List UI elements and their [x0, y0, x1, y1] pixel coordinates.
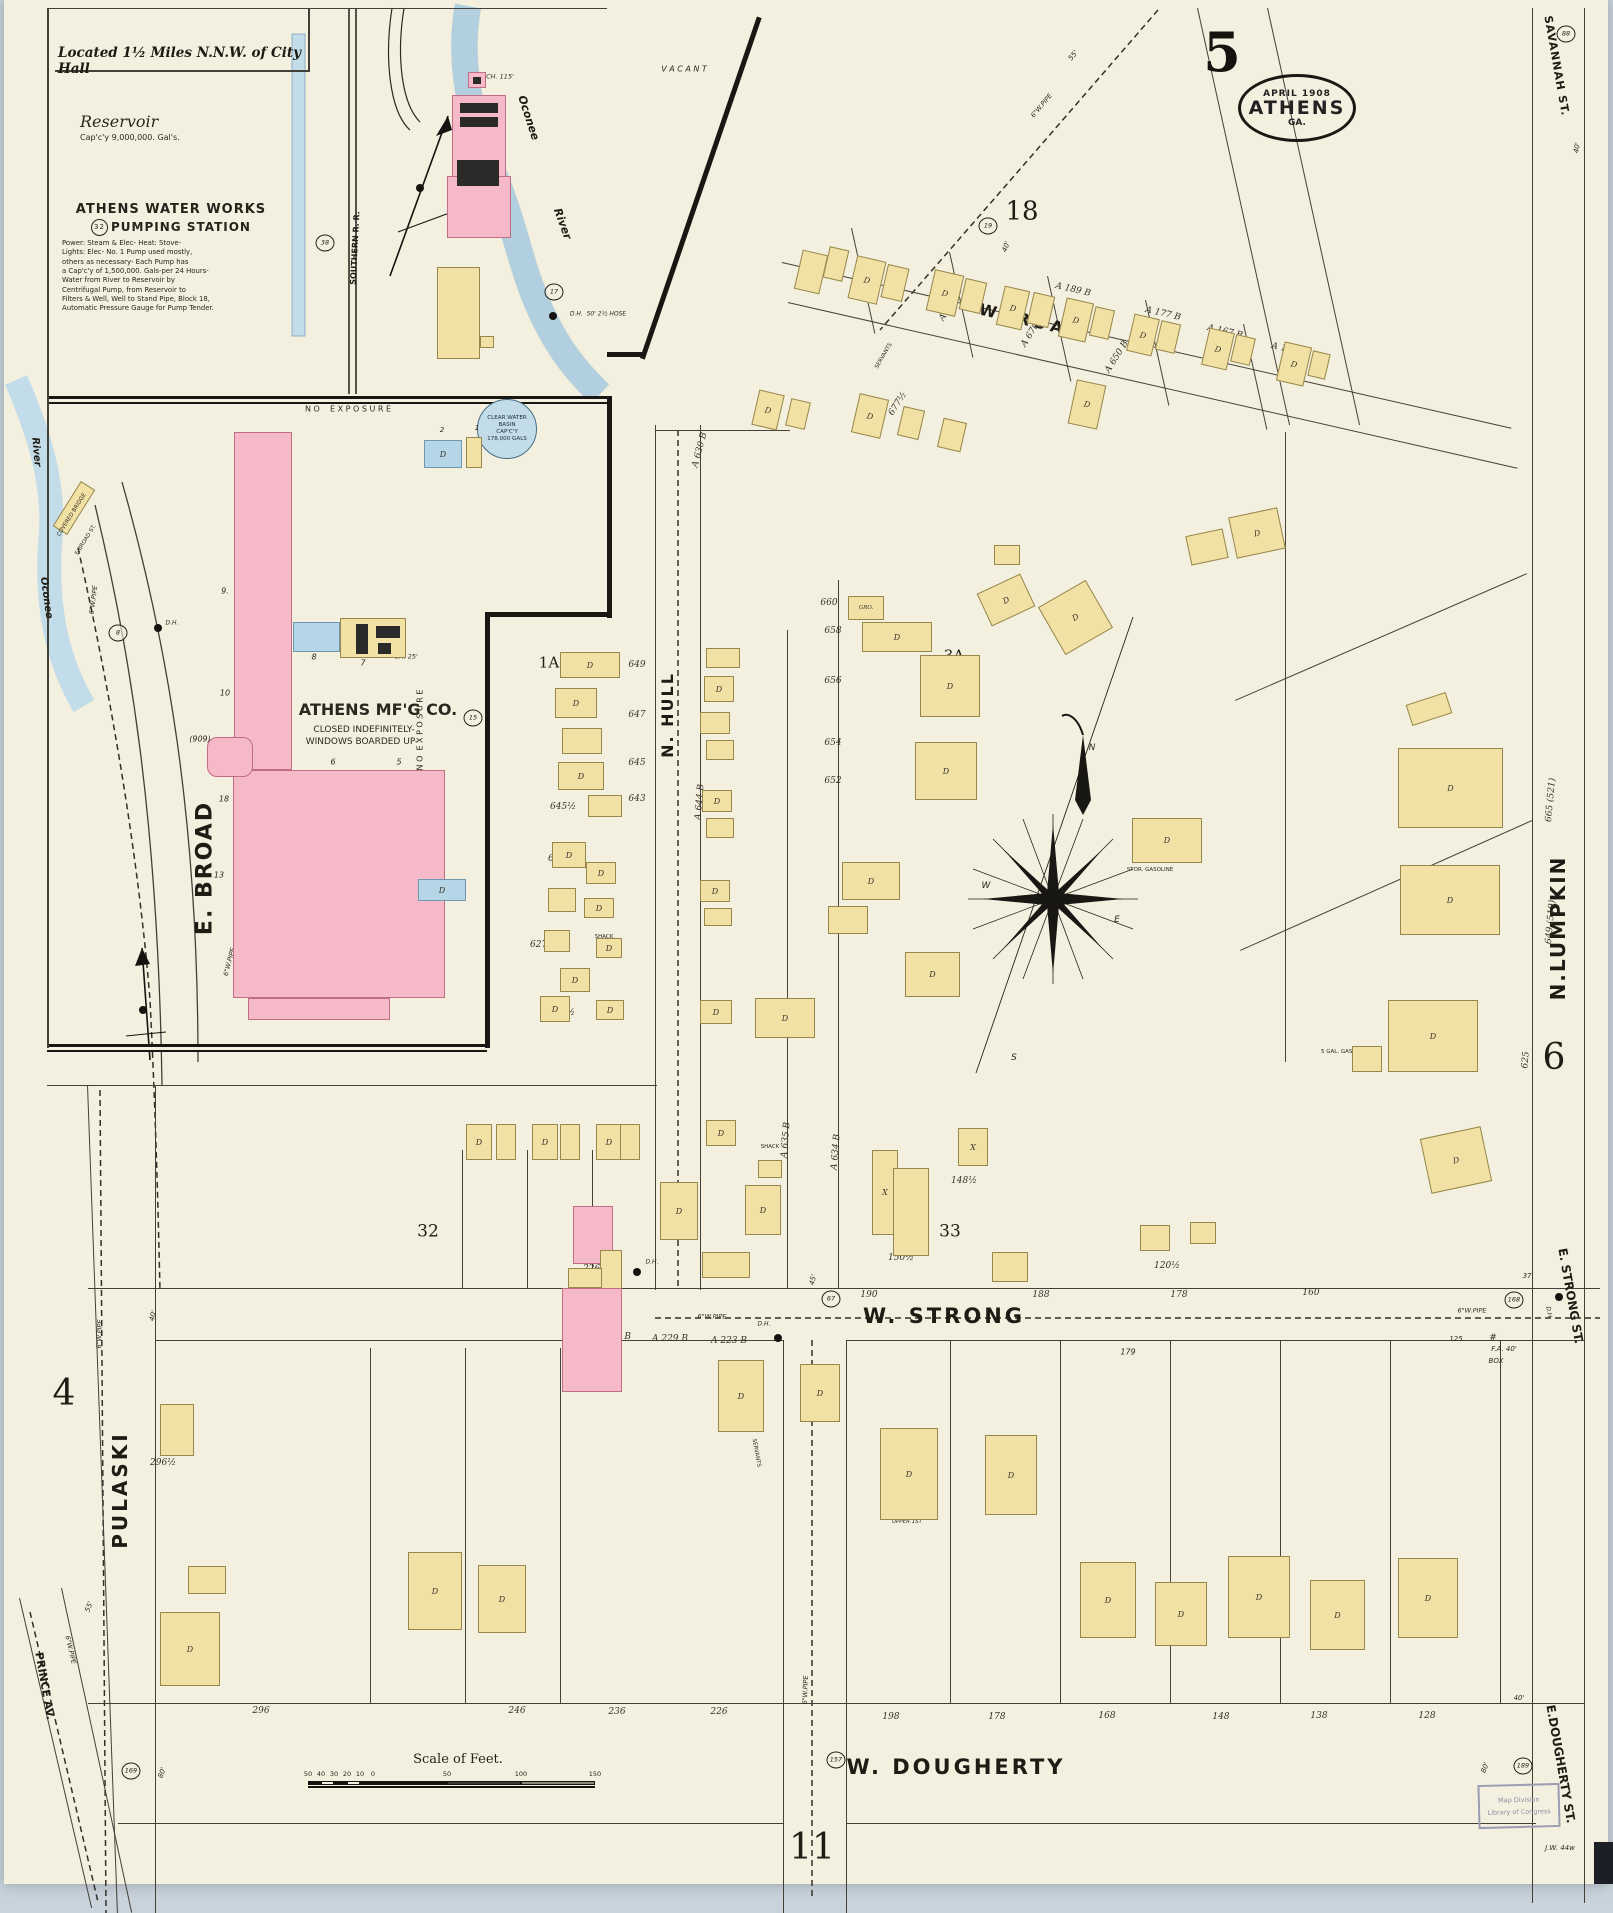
building-footprint — [702, 1252, 750, 1278]
reservoir-title: Reservoir — [80, 112, 180, 131]
house-number: 236 — [608, 1707, 625, 1717]
hydrant-dot — [774, 1334, 782, 1342]
building-footprint — [544, 930, 570, 952]
building-label: D — [1133, 819, 1201, 862]
scale-tick: 100 — [515, 1770, 527, 1778]
building-label: D — [597, 1001, 623, 1019]
building-footprint: D — [704, 676, 734, 702]
map-note: 2 — [440, 427, 444, 435]
sheet-border — [47, 8, 607, 9]
street-label: W. DOUGHERTY — [847, 1756, 1066, 1780]
e-broad-street-line — [95, 505, 162, 1085]
building-label: D — [161, 1613, 219, 1685]
map-note: SHACK — [761, 1144, 780, 1150]
block-number: 6 — [1543, 1038, 1566, 1078]
map-note: 6"W.PIPE — [1458, 1307, 1487, 1314]
map-note: D.H. — [1544, 1306, 1553, 1320]
building-label: D — [1229, 1557, 1289, 1637]
lot-line — [560, 1348, 561, 1704]
map-state: GA. — [1288, 118, 1306, 128]
building-footprint: D — [702, 790, 732, 812]
building-footprint: X — [958, 1128, 988, 1166]
scale-tick: 10 — [356, 1770, 364, 1778]
building-footprint — [473, 77, 481, 84]
building-label: D — [1081, 1563, 1135, 1637]
building-label: D — [916, 743, 976, 799]
building-footprint — [706, 818, 734, 838]
building-footprint — [378, 643, 391, 654]
savannah-street-line — [1584, 8, 1585, 1903]
scale-bar-segment — [360, 1781, 373, 1785]
lot-line — [1060, 1340, 1061, 1704]
building-label: D — [701, 881, 729, 901]
lot-line — [1280, 1340, 1281, 1704]
hydrant-dot — [154, 624, 162, 632]
building-footprint: D — [700, 880, 730, 902]
sheet-border — [47, 8, 49, 1048]
oconee-river-left — [16, 380, 84, 706]
scale-tick: 150 — [589, 1770, 601, 1778]
map-note: S — [1011, 1053, 1017, 1063]
building-footprint — [562, 1288, 622, 1392]
w-strong-street-line — [155, 1340, 783, 1341]
house-number: 660 — [820, 598, 837, 608]
house-number: A 229 B — [652, 1334, 688, 1344]
house-number: 656 — [824, 676, 841, 686]
building-footprint — [620, 1124, 640, 1160]
building-label: D — [479, 1566, 525, 1632]
building-footprint: D — [596, 938, 622, 958]
building-label: D — [705, 677, 733, 701]
block-number: 4 — [53, 1374, 76, 1414]
building-footprint: D — [1155, 1582, 1207, 1646]
house-number: 178 — [1170, 1290, 1187, 1300]
building-footprint: D — [718, 1360, 764, 1432]
rail-spur — [401, 8, 420, 122]
section-border — [607, 396, 612, 618]
building-label: D — [1421, 1127, 1491, 1192]
block-number: 18 — [1005, 197, 1038, 226]
building-footprint: D — [1398, 1558, 1458, 1638]
lot-line — [527, 1150, 528, 1288]
building-label: D — [597, 939, 621, 957]
building-footprint — [568, 1268, 602, 1288]
building-footprint — [207, 737, 253, 777]
house-number: 128 — [1418, 1711, 1435, 1721]
building-label: D — [559, 763, 603, 789]
circled-reference-number: 8 — [109, 625, 128, 642]
building-footprint — [460, 103, 498, 113]
scale-tick: 50 — [443, 1770, 451, 1778]
waterworks-subtitle: 32PUMPING STATION — [62, 219, 280, 236]
north-arrow-waterworks — [390, 116, 452, 276]
building-footprint: D — [560, 652, 620, 678]
building-footprint — [1140, 1225, 1170, 1251]
map-note: W — [982, 881, 991, 891]
circled-reference-number: 157 — [827, 1752, 846, 1769]
street-label: E. BROAD — [194, 801, 219, 935]
building-label: X — [959, 1129, 987, 1165]
map-note: 9. — [221, 588, 229, 597]
map-note: E — [1114, 915, 1120, 925]
lot-line — [787, 630, 788, 1288]
building-footprint: D — [596, 1000, 624, 1020]
waterworks-title: ATHENS WATER WORKS — [62, 202, 280, 217]
street-label: PULASKI — [109, 1431, 131, 1548]
house-number: 148 — [1212, 1712, 1229, 1722]
building-label: D — [719, 1361, 763, 1431]
building-footprint — [560, 1124, 580, 1160]
map-note: 18 — [219, 796, 229, 805]
w-dougherty-street-line — [846, 1823, 1536, 1824]
building-footprint — [600, 1250, 622, 1292]
map-note: 37' — [1523, 1273, 1534, 1281]
house-number: 625 — [1520, 1051, 1532, 1069]
lot-line — [370, 1348, 371, 1704]
stamp-line: Library of Congress — [1487, 1807, 1550, 1817]
building-footprint: D — [1132, 818, 1202, 863]
map-note: 6"W.PIPE — [698, 1313, 727, 1320]
n-hull-street-line — [700, 425, 701, 1290]
building-footprint: D — [555, 688, 597, 718]
pulaski-street-line — [155, 1085, 156, 1913]
building-footprint — [700, 712, 730, 734]
house-number: 160 — [1302, 1288, 1319, 1298]
building-label: D — [756, 999, 814, 1037]
circled-reference-number: 38 — [316, 235, 335, 252]
map-note: D.H. — [166, 621, 179, 628]
building-footprint — [248, 998, 390, 1020]
house-number: 652 — [824, 776, 841, 786]
building-label: D — [585, 899, 613, 917]
building-label: D — [986, 1436, 1036, 1514]
circled-reference-number: 19 — [979, 218, 998, 235]
lot-line — [465, 1348, 466, 1704]
mill-race — [292, 34, 305, 336]
building-label: D — [703, 791, 731, 811]
n-hull-street-line — [846, 1340, 847, 1913]
building-footprint: D — [418, 879, 466, 901]
building-footprint: D — [915, 742, 977, 800]
block-badge: 32 — [91, 219, 108, 236]
block-number: 33 — [939, 1222, 961, 1241]
building-label: D — [553, 843, 585, 867]
house-number: A 223 B — [711, 1336, 747, 1346]
building-footprint — [376, 626, 400, 638]
building-footprint: D — [880, 1428, 938, 1520]
circled-reference-number: 189 — [1514, 1758, 1533, 1775]
building-footprint: D — [466, 1124, 492, 1160]
building-label: D — [1311, 1581, 1364, 1649]
map-note: 179 — [1120, 1349, 1135, 1358]
block-number: 11 — [789, 1828, 835, 1868]
compass-rose — [968, 617, 1138, 1073]
hydrant-dot — [1555, 1293, 1563, 1301]
clear-water-basin: CLEAR WATER BASIN CAP'C'Y 178,000 GALS — [477, 399, 537, 459]
building-label: D — [921, 656, 979, 716]
building-footprint: D — [160, 1612, 220, 1686]
scale-tick: 20 — [343, 1770, 351, 1778]
building-footprint: D — [596, 1124, 622, 1160]
map-note: CLOSED INDEFINITELY- — [313, 725, 414, 735]
map-note: V A C A N T — [661, 66, 707, 75]
map-note: 10 — [220, 690, 230, 699]
w-dougherty-street-line — [88, 1703, 1584, 1704]
library-stamp: Map Division Library of Congress — [1477, 1783, 1560, 1829]
building-label: D — [467, 1125, 491, 1159]
building-footprint — [758, 1160, 782, 1178]
building-label: D — [556, 689, 596, 717]
building-footprint: D — [920, 655, 980, 717]
e-broad-street-line — [122, 482, 198, 1062]
house-number: 120½ — [1154, 1261, 1180, 1271]
building-footprint — [356, 624, 368, 654]
map-note: 125 — [1449, 1336, 1462, 1344]
building-footprint — [706, 648, 740, 668]
map-note: CH. 115' — [486, 73, 514, 80]
circled-reference-number: 169 — [122, 1763, 141, 1780]
lot-line — [1285, 432, 1286, 1062]
section-border — [47, 1044, 487, 1052]
map-note: D.H. 50' 2½ HOSE — [570, 312, 626, 319]
title-oval: APRIL 1908 ATHENS GA. — [1238, 74, 1356, 142]
map-city: ATHENS — [1249, 99, 1346, 118]
reservoir-note: Reservoir Cap'c'y 9,000,000. Gal's. — [80, 112, 180, 142]
building-footprint — [480, 336, 494, 348]
waterworks-block: ATHENS WATER WORKS 32PUMPING STATION Pow… — [62, 202, 280, 314]
building-label: D — [1399, 1559, 1457, 1637]
building-footprint: D — [552, 842, 586, 868]
n-hull-street-line — [655, 425, 656, 1290]
building-footprint — [828, 906, 868, 934]
scale-bar: 5040302010050100150 — [308, 1781, 608, 1789]
building-label: D — [1229, 508, 1284, 557]
building-footprint: D — [408, 1552, 462, 1630]
scale-bar-segment — [321, 1781, 334, 1785]
building-footprint: D — [660, 1182, 698, 1240]
building-label: D — [707, 1121, 735, 1145]
building-footprint — [994, 545, 1020, 565]
scale-bar-segment — [447, 1781, 521, 1785]
building-footprint — [234, 432, 292, 770]
w-strong-street-line — [846, 1340, 1584, 1341]
lot-line — [950, 1340, 951, 1704]
building-footprint: GRO. — [848, 596, 884, 620]
house-number: 296½ — [150, 1458, 176, 1468]
house-number: 168 — [1098, 1711, 1115, 1721]
building-footprint — [1352, 1046, 1382, 1072]
building-footprint: D — [1398, 748, 1503, 828]
w-strong-street-line — [88, 1288, 1600, 1289]
building-footprint: D — [755, 998, 815, 1038]
map-note: WINDOWS BOARDED UP- — [306, 737, 419, 747]
building-footprint: D — [540, 996, 570, 1022]
building-label: D — [843, 863, 899, 899]
building-label: D — [801, 1365, 839, 1421]
scale-tick: 40 — [317, 1770, 325, 1778]
building-label: D — [661, 1183, 697, 1239]
map-note: 8 — [311, 654, 316, 663]
map-note: 7 — [360, 660, 365, 669]
map-note: J.W. 44w — [1545, 1845, 1575, 1853]
building-label: D — [701, 1001, 731, 1023]
scale-title: Scale of Feet. — [308, 1752, 608, 1767]
building-label: D — [587, 863, 615, 883]
building-label: D — [409, 1553, 461, 1629]
building-footprint — [704, 908, 732, 926]
scale-bar-segment — [373, 1781, 447, 1785]
located-note: Located 1½ Miles N.N.W. of City Hall — [58, 45, 308, 77]
house-number: 226 — [710, 1707, 727, 1717]
building-label: D — [425, 441, 461, 467]
building-footprint — [1190, 1222, 1216, 1244]
map-note: D.H. — [758, 1322, 771, 1329]
lot-line — [655, 430, 790, 431]
building-label: D — [561, 969, 589, 991]
section-border — [607, 352, 643, 357]
section-border — [47, 396, 609, 404]
circled-reference-number: 17 — [545, 284, 564, 301]
map-note: # — [1489, 1333, 1497, 1343]
map-note: 1 — [475, 425, 479, 433]
building-footprint: D — [558, 762, 604, 790]
building-footprint: D — [1310, 1580, 1365, 1650]
building-label: D — [1156, 1583, 1206, 1645]
building-footprint — [188, 1566, 226, 1594]
building-footprint: D — [706, 1120, 736, 1146]
house-number: 645 — [628, 758, 645, 768]
block-number: 32 — [417, 1222, 439, 1241]
map-note: 6 — [330, 759, 335, 768]
building-label: D — [881, 1429, 937, 1519]
building-footprint: D — [842, 862, 900, 900]
house-number: 647 — [628, 710, 645, 720]
map-note: N — [1089, 743, 1096, 753]
house-number: 246 — [508, 1706, 525, 1716]
scan-corner — [1594, 1842, 1613, 1884]
building-label: D — [1401, 866, 1499, 934]
building-label: D — [597, 1125, 621, 1159]
building-footprint — [588, 795, 622, 817]
map-note: D.H. — [646, 1260, 659, 1267]
building-footprint: D — [586, 862, 616, 884]
scale-bar-segment — [334, 1781, 347, 1785]
building-footprint — [160, 1404, 194, 1456]
building-footprint — [706, 740, 734, 760]
circled-reference-number: 168 — [1505, 1292, 1524, 1309]
scale-tick: 50 — [304, 1770, 312, 1778]
building-footprint: D — [905, 952, 960, 997]
house-number: 649 — [628, 660, 645, 670]
map-note: 6"W.PIPE — [96, 1319, 104, 1348]
building-footprint — [496, 1124, 516, 1160]
building-label: D — [419, 880, 465, 900]
house-number: 178 — [988, 1712, 1005, 1722]
rail-spur — [389, 8, 410, 130]
reservoir-capacity: Cap'c'y 9,000,000. Gal's. — [80, 133, 180, 142]
building-footprint: D — [560, 968, 590, 992]
house-number: 148½ — [951, 1176, 977, 1186]
map-note: 6"W.PIPE — [802, 1675, 810, 1704]
scale-bar-segment — [308, 1781, 321, 1785]
section-border — [485, 612, 612, 617]
w-dougherty-street-line — [118, 1823, 783, 1824]
building-footprint — [293, 622, 340, 652]
house-number: 654 — [824, 738, 841, 748]
building-footprint: D — [424, 440, 462, 468]
map-note: 40' — [1514, 1695, 1525, 1703]
building-footprint: D — [700, 1000, 732, 1024]
building-footprint — [437, 267, 480, 359]
building-footprint — [548, 888, 576, 912]
sanborn-map-sheet: 5 APRIL 1908 ATHENS GA. Located 1½ Miles… — [0, 0, 1613, 1913]
map-note: 13 — [214, 872, 224, 881]
located-box-line — [308, 8, 310, 72]
building-label: D — [561, 653, 619, 677]
building-footprint — [340, 618, 406, 658]
hydrant-dot — [416, 184, 424, 192]
building-label: D — [533, 1125, 557, 1159]
n-hull-street-line — [783, 1340, 784, 1913]
building-footprint: D — [862, 622, 932, 652]
street-label: N. HULL — [659, 672, 677, 758]
lot-line — [1500, 1340, 1501, 1704]
lot-line — [1170, 1340, 1171, 1704]
map-note: ATHENS MF'G CO. — [299, 701, 457, 719]
house-number: 138 — [1310, 1711, 1327, 1721]
map-note: 5 — [396, 759, 401, 768]
sheet-number: 5 — [1203, 20, 1241, 84]
building-footprint: D — [1388, 1000, 1478, 1072]
scale-tick: 30 — [330, 1770, 338, 1778]
block-number: 1A — [539, 655, 559, 672]
scale-of-feet: Scale of Feet. 5040302010050100150 — [308, 1752, 608, 1789]
building-label: D — [541, 997, 569, 1021]
building-label: D — [1399, 749, 1502, 827]
house-number: 188 — [1032, 1290, 1049, 1300]
savannah-street-line — [1532, 8, 1533, 1903]
building-footprint — [992, 1252, 1028, 1282]
building-label: D — [746, 1186, 780, 1234]
scale-bar-segment — [521, 1781, 595, 1785]
building-footprint: D — [1400, 865, 1500, 935]
building-footprint: D — [1080, 1562, 1136, 1638]
building-footprint — [466, 437, 482, 468]
lot-line — [838, 580, 839, 1288]
building-label: D — [863, 623, 931, 651]
building-footprint: D — [478, 1565, 526, 1633]
building-footprint: D — [800, 1364, 840, 1422]
house-number: 658 — [824, 626, 841, 636]
section-border — [485, 612, 490, 1048]
building-footprint: D — [532, 1124, 558, 1160]
house-number: 198 — [882, 1712, 899, 1722]
house-number: 296 — [252, 1706, 269, 1716]
building-footprint — [893, 1168, 929, 1256]
house-number: 190 — [860, 1290, 877, 1300]
building-label: D — [906, 953, 959, 996]
building-footprint: D — [584, 898, 614, 918]
waterworks-description: Power: Steam & Elec- Heat: Stove- Lights… — [62, 239, 280, 314]
building-footprint — [460, 117, 498, 127]
house-number: 645½ — [550, 802, 576, 812]
building-label: GRO. — [849, 597, 883, 619]
stamp-line: Map Division — [1498, 1795, 1540, 1804]
map-note: STOR. GASOLINE — [1127, 867, 1173, 873]
lot-line — [1390, 1340, 1391, 1704]
map-note: BOX — [1489, 1358, 1504, 1366]
building-footprint: D — [985, 1435, 1037, 1515]
